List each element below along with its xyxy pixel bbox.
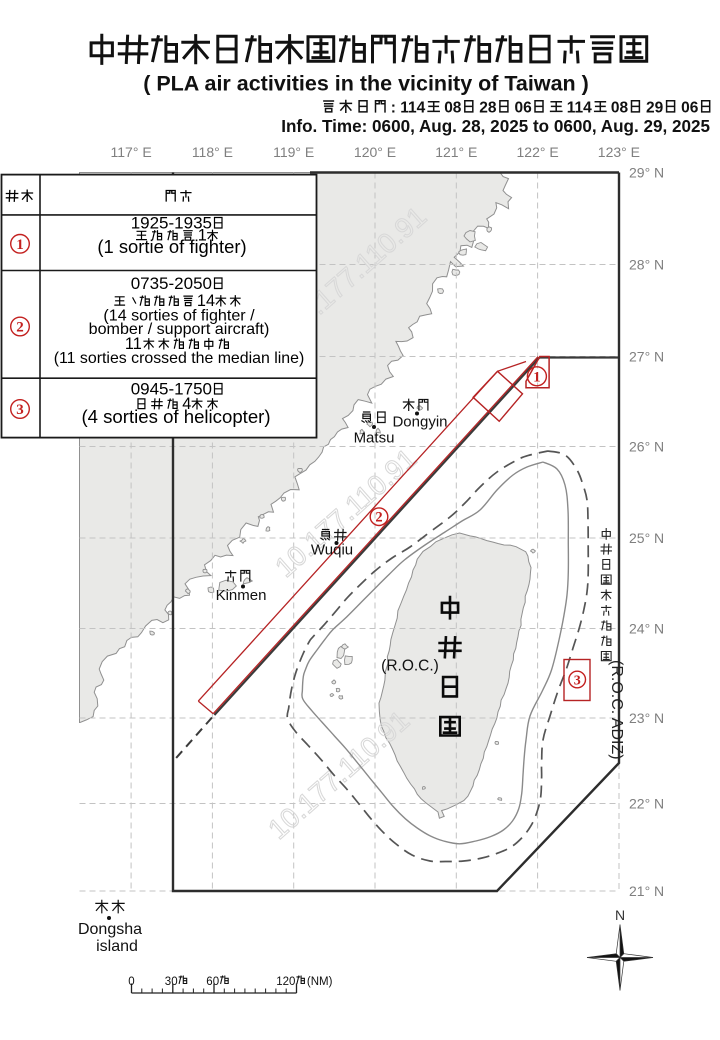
svg-text:(1 sortie of fighter): (1 sortie of fighter): [97, 236, 246, 257]
svg-text:29: 29: [646, 100, 664, 117]
svg-text:(R.O.C.): (R.O.C.): [381, 658, 439, 675]
svg-text:(4 sorties of helicopter): (4 sorties of helicopter): [81, 406, 270, 427]
svg-text:Matsu: Matsu: [354, 430, 395, 447]
svg-text:114: 114: [567, 100, 592, 117]
svg-text:0945-1750: 0945-1750: [131, 380, 212, 399]
svg-text:(NM): (NM): [307, 976, 333, 988]
svg-text:Wuqiu: Wuqiu: [311, 542, 353, 559]
svg-text:26° N: 26° N: [629, 439, 664, 455]
svg-text:27° N: 27° N: [629, 349, 664, 365]
svg-text:121° E: 121° E: [435, 144, 477, 160]
svg-text:Kinmen: Kinmen: [216, 587, 267, 604]
svg-text:28° N: 28° N: [629, 257, 664, 273]
svg-text:3: 3: [16, 402, 24, 418]
svg-text:120° E: 120° E: [354, 144, 396, 160]
svg-text:119° E: 119° E: [273, 144, 314, 160]
svg-text:3: 3: [574, 673, 581, 688]
svg-text:bomber / support aircraft): bomber / support aircraft): [89, 320, 270, 338]
svg-text:06: 06: [515, 100, 533, 117]
svg-text:0735-2050: 0735-2050: [131, 274, 212, 293]
svg-text:06: 06: [681, 100, 699, 117]
svg-text:123° E: 123° E: [598, 144, 640, 160]
svg-text:: 114: : 114: [391, 100, 426, 117]
svg-text:22° N: 22° N: [629, 796, 664, 812]
svg-text:0: 0: [128, 976, 134, 988]
svg-text:N: N: [615, 907, 625, 923]
svg-text:(R.O.C. ADIZ): (R.O.C. ADIZ): [608, 660, 625, 760]
svg-text:1: 1: [16, 237, 24, 253]
svg-text:08: 08: [444, 100, 462, 117]
svg-text:08: 08: [611, 100, 629, 117]
svg-text:118° E: 118° E: [192, 144, 233, 160]
svg-text:24° N: 24° N: [629, 621, 664, 637]
svg-text:2: 2: [375, 510, 382, 526]
svg-text:23° N: 23° N: [629, 710, 664, 726]
svg-text:1: 1: [533, 369, 541, 385]
svg-text:25° N: 25° N: [629, 530, 664, 546]
svg-text:Dongsha: Dongsha: [78, 921, 142, 938]
svg-text:21° N: 21° N: [629, 883, 664, 899]
svg-text:island: island: [96, 938, 138, 955]
svg-text:60: 60: [206, 976, 219, 988]
svg-text:Dongyin: Dongyin: [392, 414, 447, 431]
svg-text:2: 2: [16, 320, 24, 336]
svg-text:120: 120: [276, 976, 295, 988]
svg-text:122° E: 122° E: [517, 144, 559, 160]
svg-text:29° N: 29° N: [629, 165, 664, 181]
svg-text:28: 28: [479, 100, 497, 117]
svg-text:Info. Time: 0600, Aug. 28, 202: Info. Time: 0600, Aug. 28, 2025 to 0600,…: [281, 117, 710, 136]
svg-text:(11 sorties crossed the median: (11 sorties crossed the median line): [54, 350, 305, 367]
svg-text:30: 30: [165, 976, 178, 988]
svg-text:( PLA air activities in the vi: ( PLA air activities in the vicinity of …: [143, 72, 589, 96]
svg-text:117° E: 117° E: [111, 144, 152, 160]
